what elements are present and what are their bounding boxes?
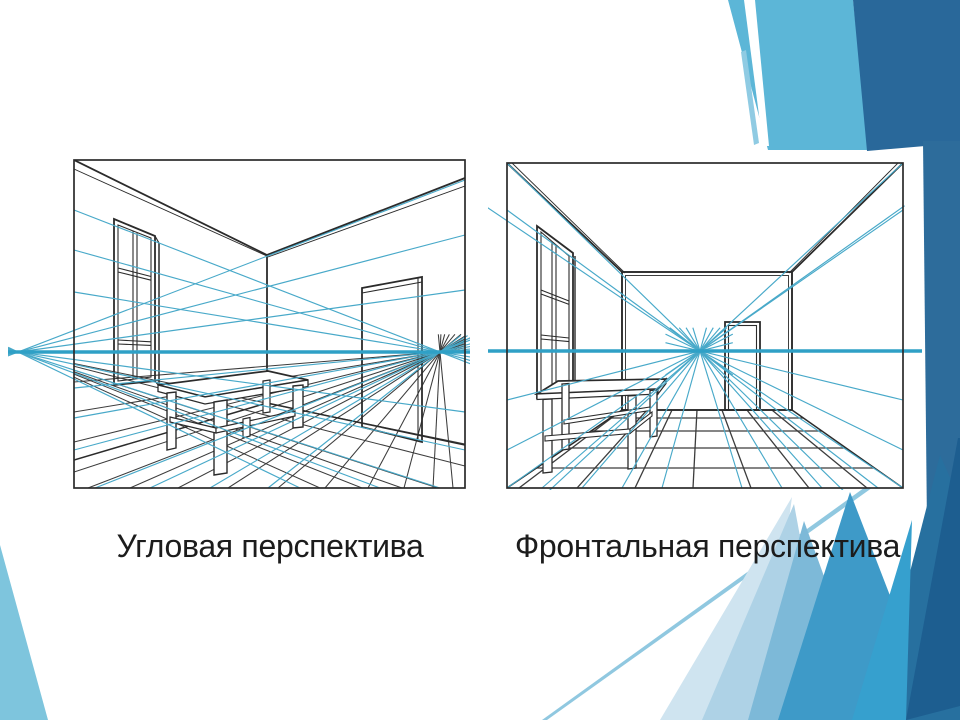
frontal-perspective-drawing	[480, 150, 940, 500]
angular-perspective-drawing	[0, 150, 480, 500]
slide-canvas: Угловая перспектива Фронтальная перспект…	[0, 0, 960, 720]
caption-frontal-perspective: Фронтальная перспектива	[485, 526, 930, 566]
caption-angular-perspective: Угловая перспектива	[60, 526, 480, 566]
